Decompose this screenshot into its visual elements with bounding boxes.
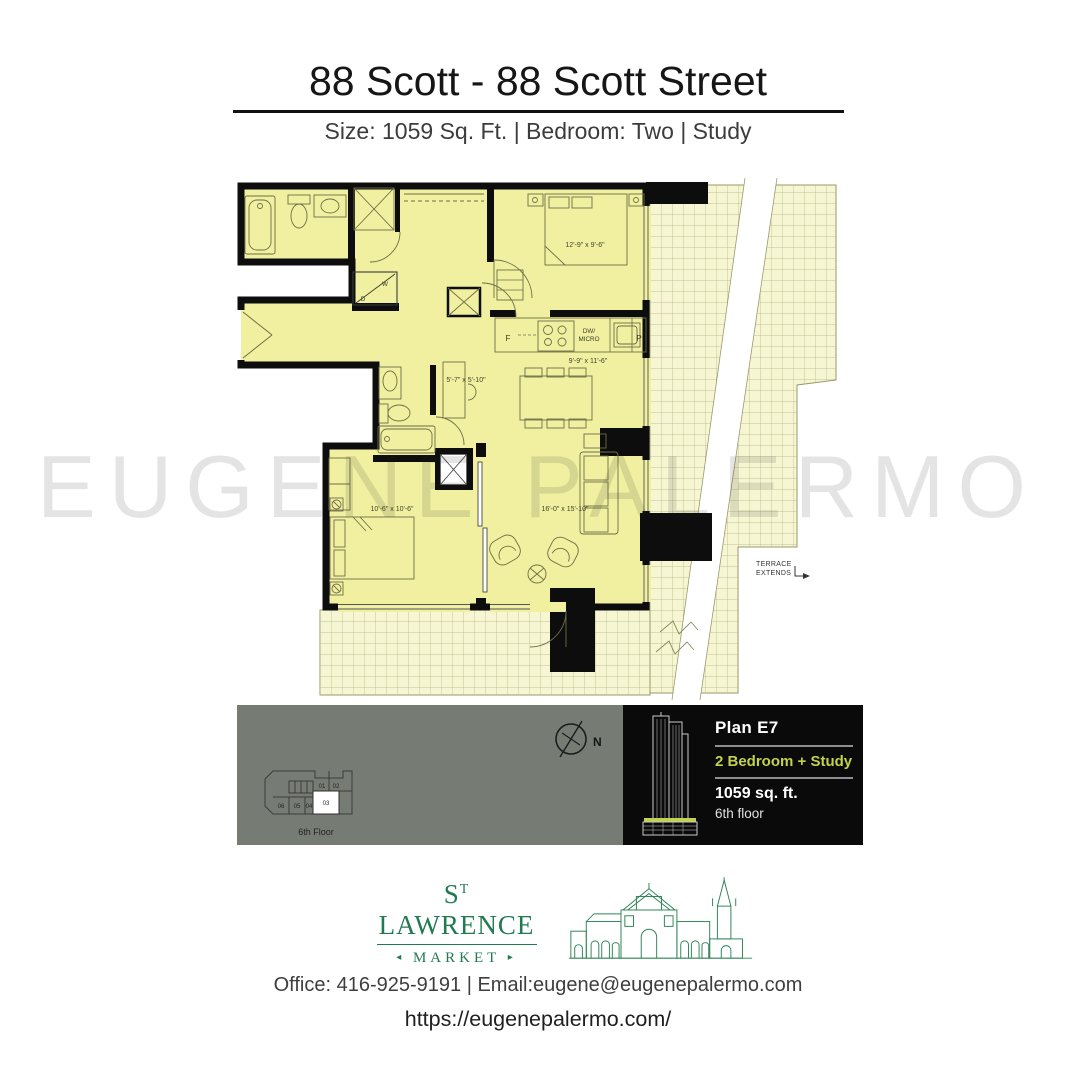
page-subtitle: Size: 1059 Sq. Ft. | Bedroom: Two | Stud… [0,118,1076,145]
microwave-label: MICRO [579,336,600,343]
floor-plan-drawing: W D 12'-9" x 9'-6" F DW/ [232,170,865,702]
terrace-bottom [320,610,650,695]
plan-info-panel: Plan E7 2 Bedroom + Study 1059 sq. ft. 6… [623,705,863,845]
dining-dimension: 9'-9" x 11'-6" [569,358,608,365]
fridge-label: F [506,334,511,343]
compass-north-label: N [593,735,602,749]
contact-info: Office: 416-925-9191 | Email:eugene@euge… [0,974,1076,997]
keyplan-panel: 01 02 06 05 04 03 6th Floor N [237,705,623,845]
unit-outline [241,186,646,607]
unit-05: 05 [294,804,301,810]
washer-label: W [382,281,388,288]
unit-04: 04 [306,804,313,810]
brand-market-label: MARKET [413,950,500,966]
brand-arrow-right-icon: ▸ [508,952,517,963]
market-illustration [567,876,755,970]
unit-02: 02 [333,784,340,790]
brand-name-sup: T [460,882,470,897]
terrace-note-line2: EXTENDS [756,570,791,577]
highlighted-floor-band [644,818,696,822]
bedroom2-dimension: 10'-6" x 10'-6" [370,506,414,513]
terrace-note: TERRACE EXTENDS [756,561,810,579]
unit-size: 1059 sq. ft. [715,785,853,803]
living-dimension: 16'-0" x 15'-10" [542,506,589,513]
keyplan-floor-label: 6th Floor [255,827,377,837]
panel-divider [715,745,853,747]
dryer-label: D [361,296,366,303]
terrace-note-line1: TERRACE [756,561,792,568]
plan-name: Plan E7 [715,718,853,738]
brand-arrow-left-icon: ◂ [396,952,405,963]
brand-row: ST LAWRENCE ◂ MARKET ▸ [0,876,1076,970]
unit-floor: 6th floor [715,806,853,821]
bedroom1-dimension: 12'-9" x 9'-6" [565,242,605,249]
page-title: 88 Scott - 88 Scott Street [0,58,1076,105]
floor-plan: W D 12'-9" x 9'-6" F DW/ [232,170,865,702]
unit-06: 06 [278,804,285,810]
brand-logo: ST LAWRENCE ◂ MARKET ▸ [377,879,537,967]
compass-icon: N [549,713,619,765]
brand-name-rest: LAWRENCE [379,910,535,940]
study-dimension: 5'-7" x 5'-10" [446,377,486,384]
brand-underline [377,944,537,945]
panel-divider [715,777,853,779]
unit-03: 03 [323,801,330,807]
unit-01: 01 [319,784,326,790]
bottom-bar: 01 02 06 05 04 03 6th Floor N [237,705,863,845]
brand-name-s: S [444,879,460,909]
building-illustration [639,710,705,840]
pantry-label: P [636,334,641,343]
keyplan-drawing: 01 02 06 05 04 03 [255,765,377,827]
website-link[interactable]: https://eugenepalermo.com/ [0,1007,1076,1032]
dishwasher-label: DW/ [583,328,595,335]
title-divider [233,110,844,113]
unit-type: 2 Bedroom + Study [715,753,853,770]
